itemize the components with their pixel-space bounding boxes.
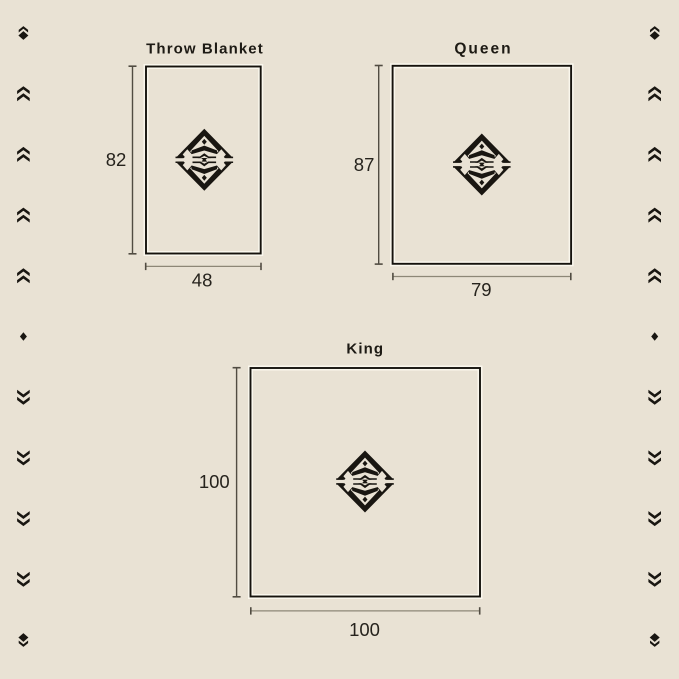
svg-text:Queen: Queen: [454, 40, 512, 57]
svg-text:48: 48: [192, 269, 213, 290]
svg-text:100: 100: [349, 619, 380, 640]
svg-text:87: 87: [354, 154, 375, 175]
svg-text:79: 79: [471, 279, 492, 300]
svg-text:100: 100: [199, 471, 230, 492]
svg-text:Throw Blanket: Throw Blanket: [146, 40, 264, 57]
svg-text:82: 82: [106, 149, 127, 170]
svg-text:King: King: [346, 341, 384, 358]
